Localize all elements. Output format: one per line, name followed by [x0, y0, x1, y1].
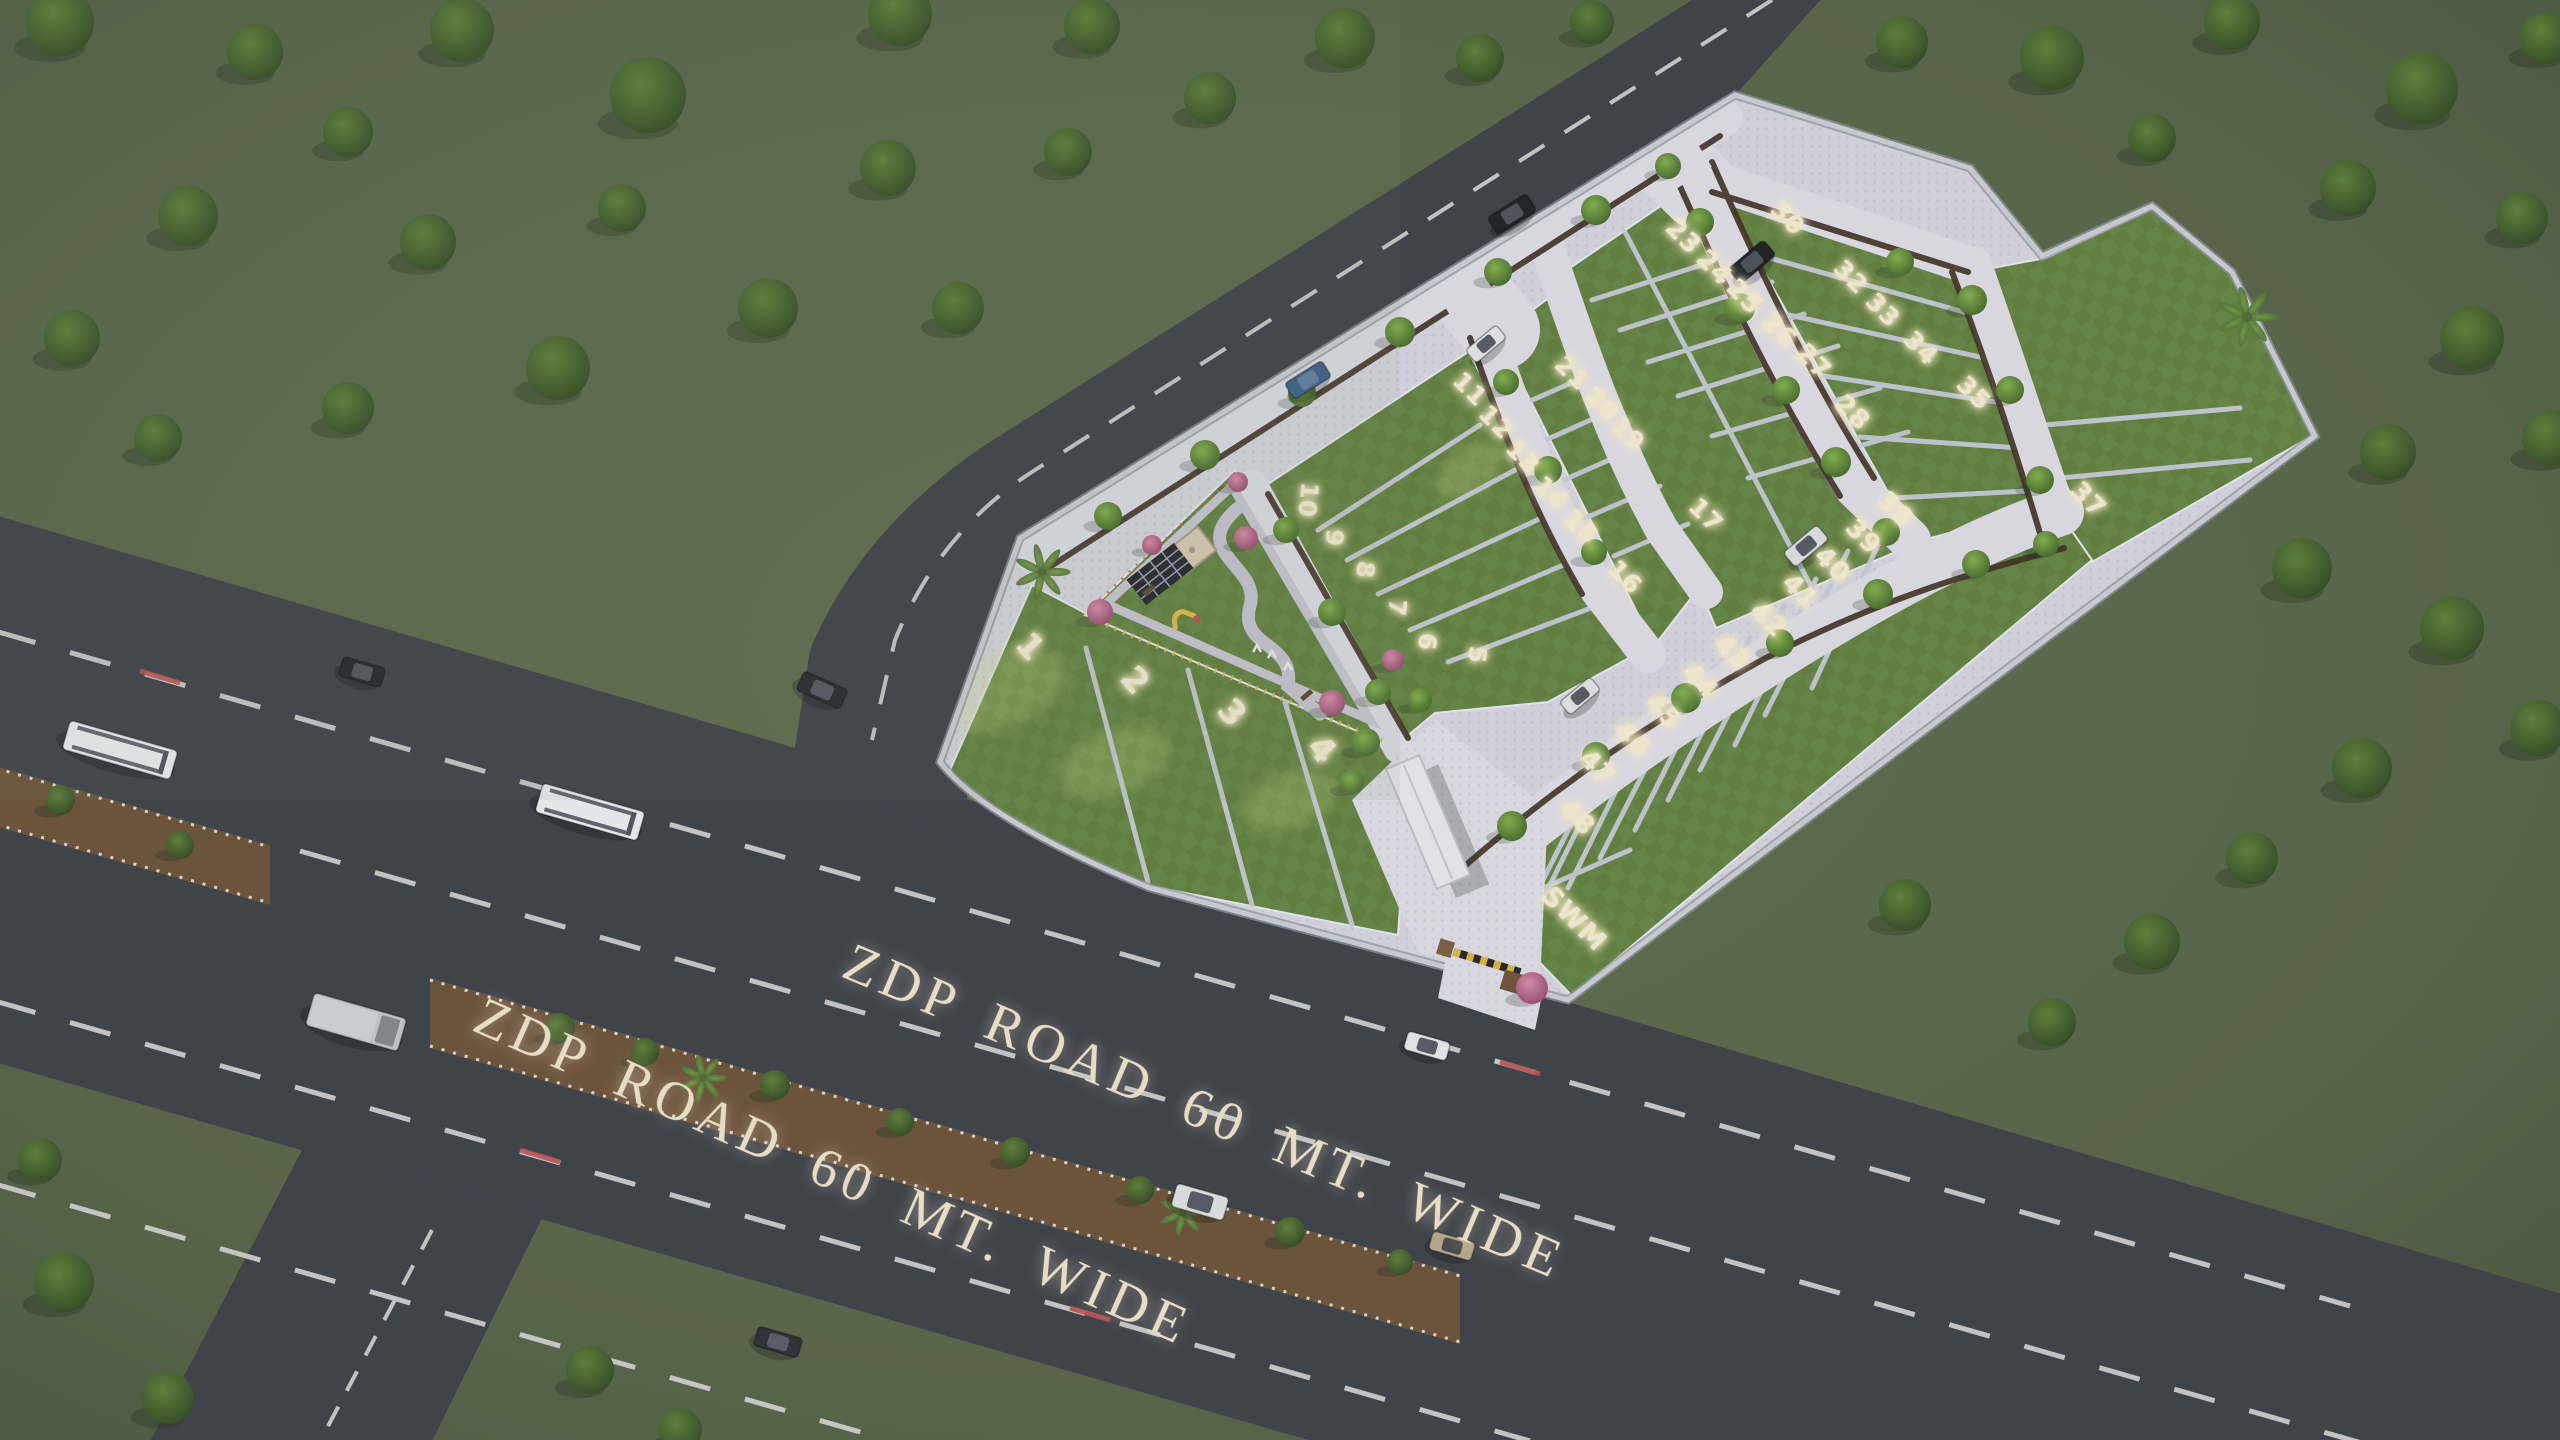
aerial-site-plan: 1234567891011121314151617192021232425262…: [0, 0, 2560, 1440]
site-plan-render: 1234567891011121314151617192021232425262…: [0, 0, 2560, 1440]
atmosphere-overlay: [0, 0, 2560, 1440]
